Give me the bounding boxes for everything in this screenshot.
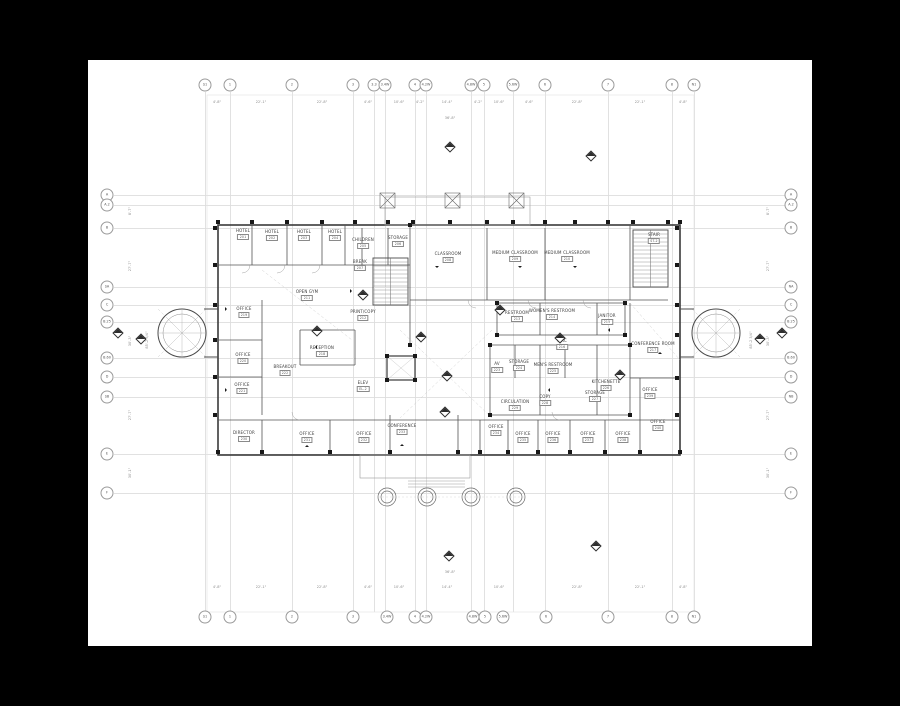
column-marker [638,450,642,454]
grid-bubble: 5 [479,611,492,624]
column-marker [250,220,254,224]
column-marker [678,220,682,224]
grid-bubble: 2 [286,79,299,92]
grid-bubble: 8 [666,79,679,92]
section-marker-icon [494,304,505,315]
room-number: 212 [357,315,369,321]
room-label: CONFERENCE ROOM217 [631,342,674,353]
grid-bubble: E [101,448,114,461]
grid-bubble: D [785,371,798,384]
room-number: 213 [511,316,523,322]
room-label: OFFICE240 [650,420,665,431]
room-number: 233 [396,429,408,435]
column-marker [328,450,332,454]
grid-bubble: N1 [688,611,701,624]
room-name: OFFICE [356,432,371,437]
room-name: COPY [539,395,551,400]
dimension-text: 36'-8" [445,116,456,120]
door-arrow-icon [658,350,662,354]
room-name: OFFICE [235,353,250,358]
grid-bubble: A.2 [101,199,114,212]
floor-plan-sheet: HOTEL201HOTEL202HOTEL203HOTEL204CHILDREN… [0,0,900,706]
grid-bubble: 8 [666,611,679,624]
section-marker-icon [444,141,455,152]
room-name: OFFICE [234,383,249,388]
room-number: 205 [357,243,369,249]
dimension-text: 27'-7" [128,410,132,421]
grid-bubble: SB [101,391,114,404]
section-marker-icon [443,550,454,561]
room-number: 229 [509,405,521,411]
room-number: 201 [237,234,249,240]
room-name: PRINT/COPY [350,310,375,315]
room-name: OFFICE [580,432,595,437]
column-marker [511,220,515,224]
column-marker [448,220,452,224]
column-marker [573,220,577,224]
room-name: OFFICE [615,432,630,437]
dimension-text: 27'-7" [766,261,770,272]
room-label: CIRCULATION229 [501,400,529,411]
column-marker [285,220,289,224]
room-name: KITCHENETTE [592,380,621,385]
column-marker [666,220,670,224]
section-marker-icon [311,325,322,336]
grid-bubble: 1 [224,611,237,624]
grid-bubble: 6 [540,611,553,624]
column-marker [216,220,220,224]
dimension-text: 14'-4" [442,100,453,104]
grid-bubble: C [785,299,798,312]
grid-bubble: E [785,448,798,461]
grid-bubble: B [785,222,798,235]
dimension-text: 4'-2" [474,100,482,104]
dimension-text: 4'-6" [364,100,372,104]
grid-bubble: S1 [199,611,212,624]
room-label: OPEN GYM211 [296,290,318,301]
room-label: CLASSROOM208 [435,252,462,263]
room-label: OFFICE220 [235,353,250,364]
column-marker [213,303,217,307]
dimension-text: 4'-8" [213,100,221,104]
door-arrow-icon [606,328,610,332]
room-number: 240 [652,425,664,431]
room-name: OFFICE [515,432,530,437]
room-label: COPY228 [539,395,551,406]
room-label: OFFICE221 [234,383,249,394]
room-number: 237 [582,437,594,443]
dimension-text: 10'-6" [494,100,505,104]
room-number: 224 [513,365,525,371]
column-marker [213,413,217,417]
dimension-text: 30'-3" [128,336,132,347]
grid-bubble: SA [101,281,114,294]
room-number: 223 [491,367,503,373]
room-label: HOTEL204 [328,230,342,241]
dimension-text: 22'-8" [572,100,583,104]
column-marker [675,303,679,307]
room-number: 216 [556,344,568,350]
column-marker [385,354,389,358]
room-label: OFFICE232 [356,432,371,443]
room-name: BREAKOUT [274,365,297,370]
room-label: WOMEN'S RESTROOM214 [529,309,575,320]
section-marker-icon [357,289,368,300]
dimension-text: 22'-8" [572,585,583,589]
column-marker [213,338,217,342]
column-marker [320,220,324,224]
section-marker-icon [754,333,765,344]
room-name: MEDIUM CLASSROOM [544,251,590,256]
room-number: 202 [266,235,278,241]
room-number: 208 [442,257,454,263]
room-number: 230 [238,436,250,442]
grid-bubble: 2 [286,611,299,624]
grid-bubble: 5 [478,79,491,92]
column-marker [675,413,679,417]
room-number: 219 [238,312,250,318]
room-label: MEDIUM CLASSROOM210 [544,251,590,262]
room-name: OFFICE [488,425,503,430]
section-marker-icon [590,540,601,551]
grid-bubble: F [785,487,798,500]
room-number: 222 [279,370,291,376]
room-name: CIRCULATION [501,400,529,405]
room-label: MEN'S RESTROOM225 [534,363,573,374]
door-arrow-icon [573,266,577,270]
grid-bubble: 1 [224,79,237,92]
room-name: MEN'S RESTROOM [534,363,573,368]
column-marker [413,378,417,382]
column-marker [675,333,679,337]
grid-bubble: B.25 [101,316,114,329]
room-name: OFFICE [545,432,560,437]
column-marker [388,450,392,454]
grid-bubble: 6 [539,79,552,92]
room-name: JANITOR [598,314,615,319]
room-label: RESTROOM213 [505,311,529,322]
column-marker [506,450,510,454]
dimension-text: 10'-6" [394,585,405,589]
room-label: BREAK207 [353,260,367,271]
door-arrow-icon [518,266,522,270]
symbols-layer [0,0,900,706]
column-marker [628,413,632,417]
room-label: OFFICE219 [236,307,251,318]
section-marker-icon [585,150,596,161]
dimension-text: 22'-8" [317,585,328,589]
room-name: STORAGE [509,360,529,365]
room-name: ELEV [357,381,370,386]
dimension-text: 85'-2 3/4" [749,331,753,348]
dimension-text: 4'-6" [364,585,372,589]
dimension-text: 10'-6" [494,585,505,589]
section-marker-icon [415,331,426,342]
column-marker [675,226,679,230]
door-arrow-icon [305,443,309,447]
column-marker [353,220,357,224]
room-label: ELEVEL-2 [357,381,370,392]
dimension-text: 22'-1" [256,100,267,104]
room-label: JANITOR215 [598,314,615,325]
door-arrow-icon [546,388,550,392]
room-label: OFFICE235 [515,432,530,443]
column-marker [675,263,679,267]
grid-bubble: B.60 [101,352,114,365]
room-name: HOTEL [265,230,279,235]
grid-bubble: 3.4W [379,79,392,92]
room-name: WOMEN'S RESTROOM [529,309,575,314]
room-label: OFFICE238 [615,432,630,443]
room-number: 236 [547,437,559,443]
room-label: HOTEL203 [297,230,311,241]
grid-bubble: 7 [602,611,615,624]
column-marker [568,450,572,454]
room-name: OFFICE [299,432,314,437]
room-label: CONFERENCE233 [388,424,417,435]
room-name: STAIR [648,233,660,238]
room-label: BREAKOUT222 [274,365,297,376]
grid-bubble: B.60 [785,352,798,365]
column-marker [675,376,679,380]
grid-bubble: A.2 [785,199,798,212]
grid-bubble: NA [785,281,798,294]
column-marker [485,220,489,224]
grid-bubble: 4.2W [420,611,433,624]
room-number: 227 [589,396,601,402]
room-name: STORAGE [585,391,605,396]
grid-bubble: B [101,222,114,235]
room-number: 214 [546,314,558,320]
dimension-text: 30'-1" [128,468,132,479]
door-arrow-icon [400,442,404,446]
grid-bubble: 5.6W [497,611,510,624]
column-marker [408,343,412,347]
room-name: BREAK [353,260,367,265]
room-label: PRINT/COPY212 [350,310,375,321]
room-number: EL-2 [357,386,370,392]
door-arrow-icon [225,307,229,311]
grid-bubble: B.25 [785,316,798,329]
room-number: 238 [617,437,629,443]
room-number: 228 [539,400,551,406]
room-name: OFFICE [236,307,251,312]
room-name: HOTEL [328,230,342,235]
dimension-text: 27'-7" [766,410,770,421]
room-number: 221 [236,388,248,394]
dimension-text: 8'-7" [128,207,132,215]
dimension-text: 22'-1" [635,100,646,104]
grid-bubble: 7 [602,79,615,92]
dimension-text: 10'-6" [394,100,405,104]
door-arrow-icon [225,388,229,392]
door-arrow-icon [435,266,439,270]
column-marker [260,450,264,454]
section-marker-icon [441,370,452,381]
room-label: HOTEL202 [265,230,279,241]
room-number: 225 [547,368,559,374]
grid-bubble: C [101,299,114,312]
room-number: ST-2 [648,238,660,244]
dimension-text: 4'-8" [679,100,687,104]
room-label: CHILDREN205 [352,238,374,249]
room-label: STORAGE224 [509,360,529,371]
column-marker [623,333,627,337]
room-label: OFFICE231 [299,432,314,443]
room-label: AV223 [491,362,503,373]
section-marker-icon [439,406,450,417]
dimension-text: 30'-3" [766,336,770,347]
room-name: RESTROOM [505,311,529,316]
dimension-text: 4'-6" [525,100,533,104]
room-number: 211 [301,295,313,301]
column-marker [385,378,389,382]
room-label: OFFICE234 [488,425,503,436]
dimension-text: 36'-8" [445,570,456,574]
room-number: 210 [561,256,573,262]
room-name: CONFERENCE [388,424,417,429]
room-number: 215 [601,319,613,325]
room-number: 203 [298,235,310,241]
grid-bubble: F [101,487,114,500]
grid-bubble: 3 [347,611,360,624]
column-marker [536,450,540,454]
room-number: 239 [644,393,656,399]
room-number: 235 [517,437,529,443]
column-marker [386,220,390,224]
dimension-text: 4'-8" [679,585,687,589]
dimension-text: 30'-1" [766,468,770,479]
grid-bubble: 3.4W [381,611,394,624]
column-marker [213,226,217,230]
column-marker [478,450,482,454]
room-name: STORAGE [388,236,408,241]
grid-bubble: 4.8W [465,79,478,92]
grid-bubble: 5.6W [507,79,520,92]
dimension-text: 22'-1" [256,585,267,589]
room-name: CLASSROOM [435,252,462,257]
room-number: 232 [358,437,370,443]
room-label: OFFICE236 [545,432,560,443]
dimension-text: 22'-8" [317,100,328,104]
room-number: 209 [509,256,521,262]
column-marker [623,301,627,305]
room-number: 220 [237,358,249,364]
column-marker [488,413,492,417]
column-marker [628,343,632,347]
room-name: CONFERENCE ROOM [631,342,674,347]
column-marker [213,263,217,267]
section-marker-icon [776,327,787,338]
door-arrow-icon [350,289,354,293]
column-marker [213,375,217,379]
column-marker [408,223,412,227]
column-marker [606,220,610,224]
room-number: 234 [490,430,502,436]
grid-bubble: 3 [347,79,360,92]
room-name: CHILDREN [352,238,374,243]
grid-bubble: D [101,371,114,384]
room-number: 204 [329,235,341,241]
column-marker [488,343,492,347]
room-name: MEDIUM CLASSROOM [492,251,538,256]
column-marker [631,220,635,224]
column-marker [603,450,607,454]
room-name: OPEN GYM [296,290,318,295]
grid-bubble: NB [785,391,798,404]
dimension-text: 4'-8" [213,585,221,589]
room-label: MEDIUM CLASSROOM209 [492,251,538,262]
room-name: HOTEL [297,230,311,235]
dimension-text: 4'-2" [416,100,424,104]
section-marker-icon [112,327,123,338]
room-label: STORAGE227 [585,391,605,402]
grid-bubble: 4.2W [420,79,433,92]
column-marker [678,450,682,454]
dimension-text: 22'-1" [635,585,646,589]
room-number: 206 [392,241,404,247]
room-label: HOTEL201 [236,229,250,240]
grid-bubble: N1 [688,79,701,92]
dimension-text: 14'-4" [442,585,453,589]
room-label: STORAGE206 [388,236,408,247]
column-marker [413,354,417,358]
column-marker [216,450,220,454]
column-marker [495,333,499,337]
room-name: AV [491,362,503,367]
room-label: STAIRST-2 [648,233,660,244]
column-marker [543,220,547,224]
room-name: OFFICE [650,420,665,425]
grid-bubble: S1 [199,79,212,92]
column-marker [456,450,460,454]
room-label: OFFICE237 [580,432,595,443]
room-label: OFFICE239 [642,388,657,399]
room-label: DIRECTOR230 [233,431,255,442]
dimension-text: 27'-7" [128,261,132,272]
room-number: 207 [354,265,366,271]
room-name: HOTEL [236,229,250,234]
room-name: DIRECTOR [233,431,255,436]
room-name: OFFICE [642,388,657,393]
room-number: 218 [316,351,328,357]
door-arrow-icon [313,345,317,349]
dimension-text: 8'-7" [766,207,770,215]
